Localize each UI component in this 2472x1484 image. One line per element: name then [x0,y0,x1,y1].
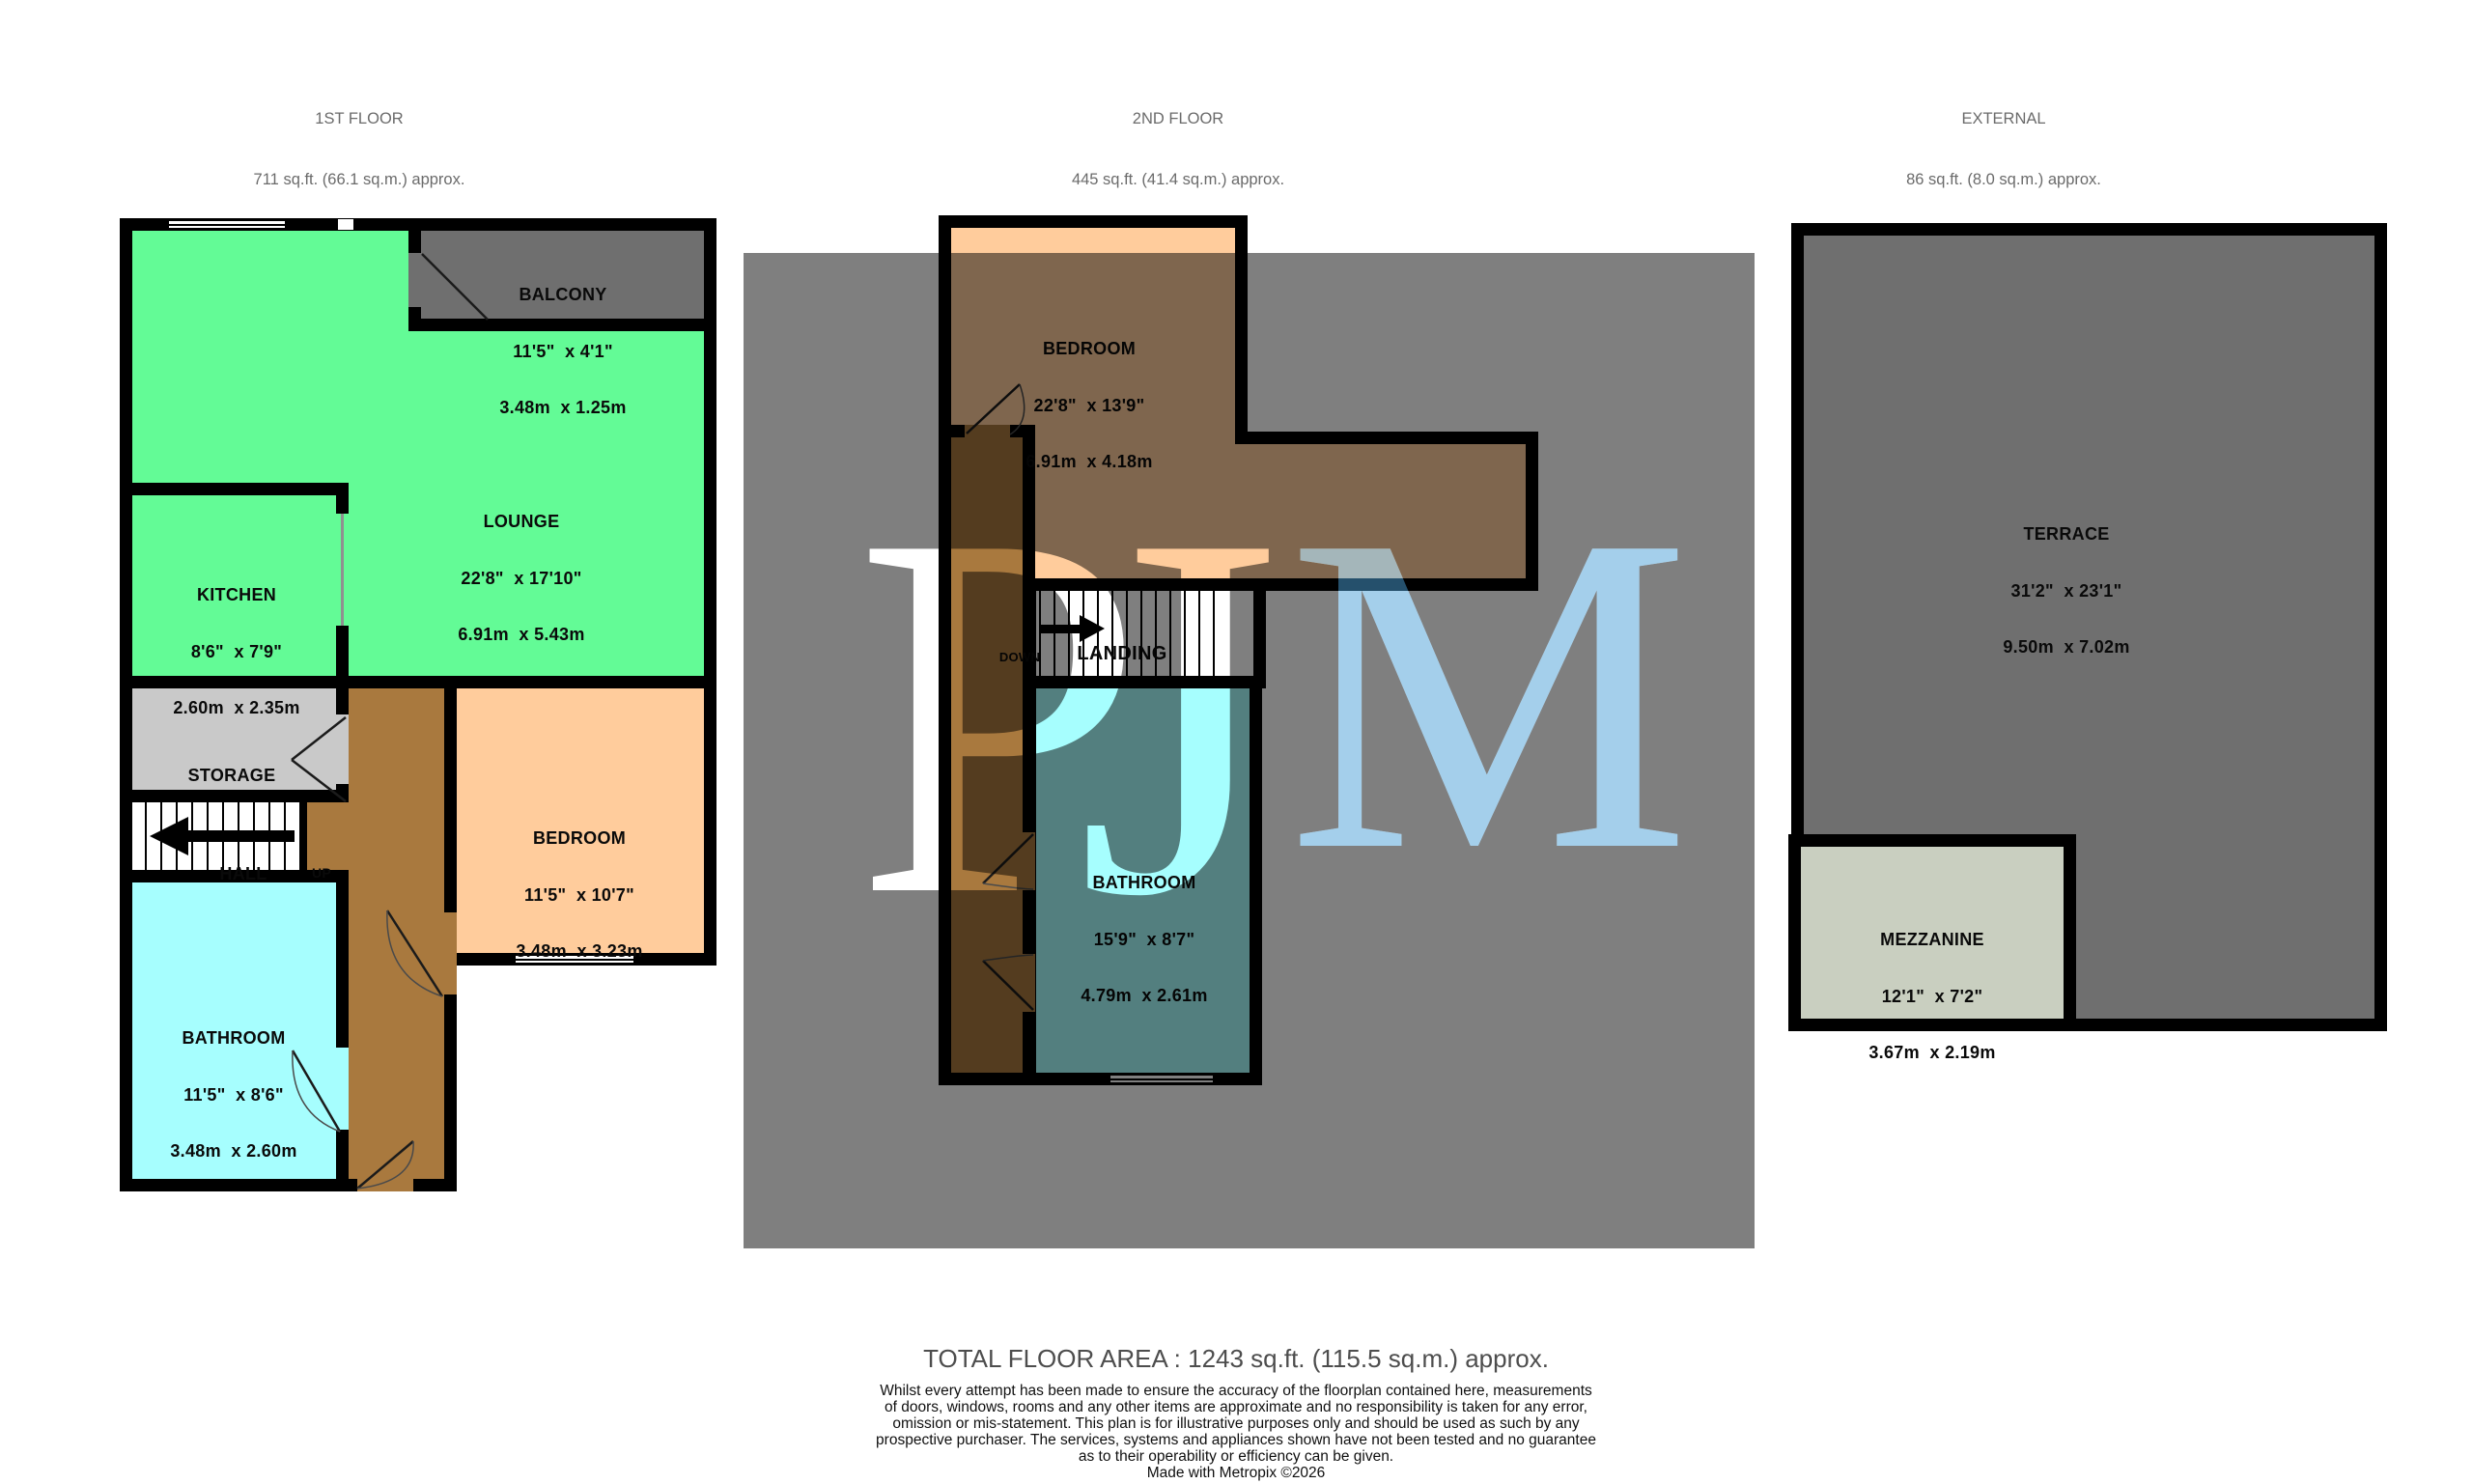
room-name: HALL [219,865,267,884]
doorway-balcony [408,253,421,307]
room-label-balcony: BALCONY 11'5" x 4'1" 3.48m x 1.25m [499,248,626,456]
doorway-bathroom-second [1023,832,1035,890]
disclaimer-line: as to their operability or efficiency ca… [0,1448,2472,1465]
doorway-bedroom-second [965,425,1010,437]
room-name: BALCONY [499,286,626,305]
disclaimer-line: omission or mis-statement. This plan is … [0,1415,2472,1432]
room-name: TERRACE [2003,525,2129,545]
disclaimer-line: Whilst every attempt has been made to en… [0,1383,2472,1399]
room-dims-metric: 6.91m x 4.18m [1025,453,1152,472]
room-name: STORAGE [188,767,276,786]
floor-title: EXTERNAL [1906,109,2101,129]
room-label-bathroom-second: BATHROOM 15'9" x 8'7" 4.79m x 2.61m [1081,836,1207,1044]
doorway-entrance [357,1179,413,1191]
floor-title: 1ST FLOOR [254,109,465,129]
room-dims-imperial: 31'2" x 23'1" [2003,582,2129,602]
metropix-credit: Made with Metropix ©2026 [0,1465,2472,1481]
room-label-bathroom-first: BATHROOM 11'5" x 8'6" 3.48m x 2.60m [170,992,296,1199]
room-dims-metric: 2.60m x 2.35m [173,699,299,718]
room-label-terrace: TERRACE 31'2" x 23'1" 9.50m x 7.02m [2003,488,2129,695]
doorway-hall-second [1023,954,1035,1012]
stairs-down-arrow [1040,615,1108,642]
floor-title: 2ND FLOOR [1072,109,1284,129]
room-name: BATHROOM [1081,874,1207,893]
room-dims-metric: 4.79m x 2.61m [1081,987,1207,1006]
room-label-lounge: LOUNGE 22'8" x 17'10" 6.91m x 5.43m [458,475,584,683]
room-label-kitchen: KITCHEN 8'6" x 7'9" 2.60m x 2.35m [173,548,299,756]
stairs-down-label: DOWN [999,610,1040,705]
floor-header-second: 2ND FLOOR 445 sq.ft. (41.4 sq.m.) approx… [1072,69,1284,231]
stairs-up-arrow [150,816,304,856]
floorplan-page: 1ST FLOOR 711 sq.ft. (66.1 sq.m.) approx… [0,0,2472,1484]
room-label-mezzanine: MEZZANINE 12'1" x 7'2" 3.67m x 2.19m [1868,893,1995,1101]
room-dims-metric: 3.67m x 2.19m [1868,1044,1995,1063]
disclaimer-line: of doors, windows, rooms and any other i… [0,1399,2472,1415]
room-dims-metric: 6.91m x 5.43m [458,626,584,645]
disclaimer-line: prospective purchaser. The services, sys… [0,1432,2472,1448]
doorway-bedroom-first [444,912,457,994]
room-dims-metric: 3.48m x 2.60m [170,1142,296,1162]
room-dims-metric: 3.48m x 3.23m [516,942,642,962]
doorway-storage [336,714,349,784]
doorway-bathroom-first [336,1048,349,1130]
room-name: LANDING [1077,645,1166,664]
floor-header-first: 1ST FLOOR 711 sq.ft. (66.1 sq.m.) approx… [254,69,465,231]
room-dims-imperial: 22'8" x 17'10" [458,570,584,589]
room-label-bedroom-second: BEDROOM 22'8" x 13'9" 6.91m x 4.18m [1025,302,1152,510]
room-name: BATHROOM [170,1029,296,1049]
floor-area: 445 sq.ft. (41.4 sq.m.) approx. [1072,170,1284,190]
kitchen-door-leaf [341,514,344,626]
room-dims-imperial: 15'9" x 8'7" [1081,931,1207,950]
window-small-top [338,219,353,230]
room-bedroom-second-wing [1235,432,1538,591]
stairs-up-label: UP [312,826,331,921]
room-name: LOUNGE [458,513,584,532]
window-bathroom-second [1110,1074,1213,1084]
room-dims-imperial: 11'5" x 8'6" [170,1086,296,1106]
room-label-bedroom-first: BEDROOM 11'5" x 10'7" 3.48m x 3.23m [516,792,642,999]
room-name: BEDROOM [516,829,642,849]
bedroom-wing-opening [1235,444,1248,578]
room-dims-imperial: 22'8" x 13'9" [1025,397,1152,416]
room-name: MEZZANINE [1868,931,1995,950]
room-dims-imperial: 11'5" x 10'7" [516,886,642,906]
floor-area: 711 sq.ft. (66.1 sq.m.) approx. [254,170,465,190]
room-dims-metric: 9.50m x 7.02m [2003,638,2129,658]
floor-area: 86 sq.ft. (8.0 sq.m.) approx. [1906,170,2101,190]
window-lounge [169,219,285,230]
room-dims-imperial: 8'6" x 7'9" [173,643,299,662]
total-floor-area: TOTAL FLOOR AREA : 1243 sq.ft. (115.5 sq… [0,1344,2472,1374]
room-name: KITCHEN [173,586,299,605]
room-name: BEDROOM [1025,340,1152,359]
room-label-storage: STORAGE [188,729,276,824]
room-dims-imperial: 11'5" x 4'1" [499,343,626,362]
floor-header-external: EXTERNAL 86 sq.ft. (8.0 sq.m.) approx. [1906,69,2101,231]
room-dims-metric: 3.48m x 1.25m [499,399,626,418]
room-hall-second [939,425,1035,1085]
room-dims-imperial: 12'1" x 7'2" [1868,988,1995,1007]
